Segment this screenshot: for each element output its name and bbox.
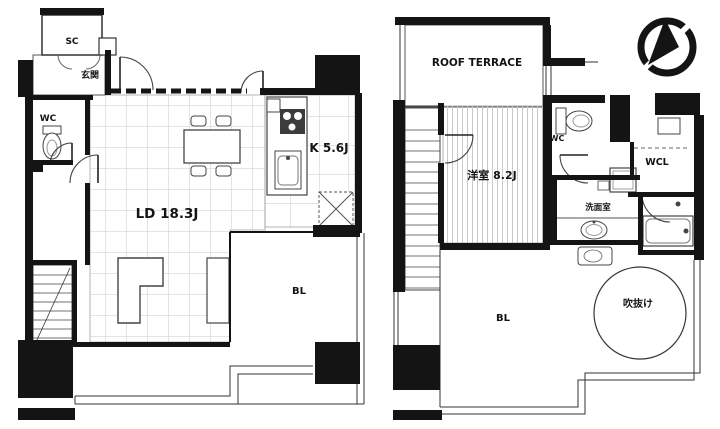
washbasin (581, 221, 607, 239)
dining-chair (191, 166, 206, 176)
label-sc: SC (65, 37, 78, 47)
basin-faucet (593, 221, 596, 224)
washroom-fixtures (557, 168, 638, 265)
stove-burner (283, 112, 291, 120)
upper-floor-plan: ROOF TERRACE 洋室 8.2J WC WCL 洗面室 吹抜け BL (393, 17, 704, 420)
stairs-lower (33, 265, 72, 345)
label-wc-upper: WC (550, 134, 565, 143)
label-wcl: WCL (645, 157, 669, 168)
floor-plan-drawing: SC 玄関 WC LD 18.3J K 5.6J BL (0, 0, 720, 429)
lower-floor-plan: SC 玄関 WC LD 18.3J K 5.6J BL (18, 8, 364, 420)
dining-chair (191, 116, 206, 126)
label-washroom: 洗面室 (585, 202, 611, 213)
stove-burner (289, 124, 296, 131)
label-bedroom: 洋室 8.2J (467, 168, 516, 182)
north-compass-icon (641, 19, 693, 73)
label-wc-lower: WC (40, 114, 57, 124)
label-ld: LD 18.3J (136, 206, 199, 222)
dining-chair (216, 166, 231, 176)
stairs-upper (405, 108, 440, 290)
outdoor-basin (578, 247, 612, 265)
dining-table (184, 130, 240, 163)
counter-box (267, 99, 280, 112)
toilet-lower (43, 126, 61, 159)
dining-chair (216, 116, 231, 126)
wcl-shelf (658, 118, 680, 134)
label-bl-upper: BL (496, 313, 511, 324)
bath-faucet (684, 229, 689, 234)
label-genkan: 玄関 (81, 69, 99, 81)
label-void: 吹抜け (623, 297, 653, 310)
label-roof-terrace: ROOF TERRACE (432, 57, 522, 69)
floor-plan-page: SC 玄関 WC LD 18.3J K 5.6J BL (0, 0, 720, 429)
label-bl-lower: BL (292, 286, 307, 297)
tv-board (207, 258, 229, 323)
stove-burner (294, 112, 302, 120)
label-kitchen: K 5.6J (309, 141, 348, 155)
toilet-upper (556, 108, 592, 134)
kitchen-counter (267, 97, 307, 195)
toilet-tank (556, 108, 566, 134)
void-circle (594, 267, 686, 359)
walk-in-closet-fixtures (634, 118, 690, 148)
toilet-bowl-inner (47, 140, 57, 156)
shower-head (676, 202, 681, 207)
toilet-bowl-inner (573, 115, 589, 127)
bathroom-fixtures (643, 202, 693, 247)
small-storage-box (598, 181, 609, 190)
kitchen-faucet (286, 156, 290, 160)
refrigerator-space (319, 192, 353, 226)
